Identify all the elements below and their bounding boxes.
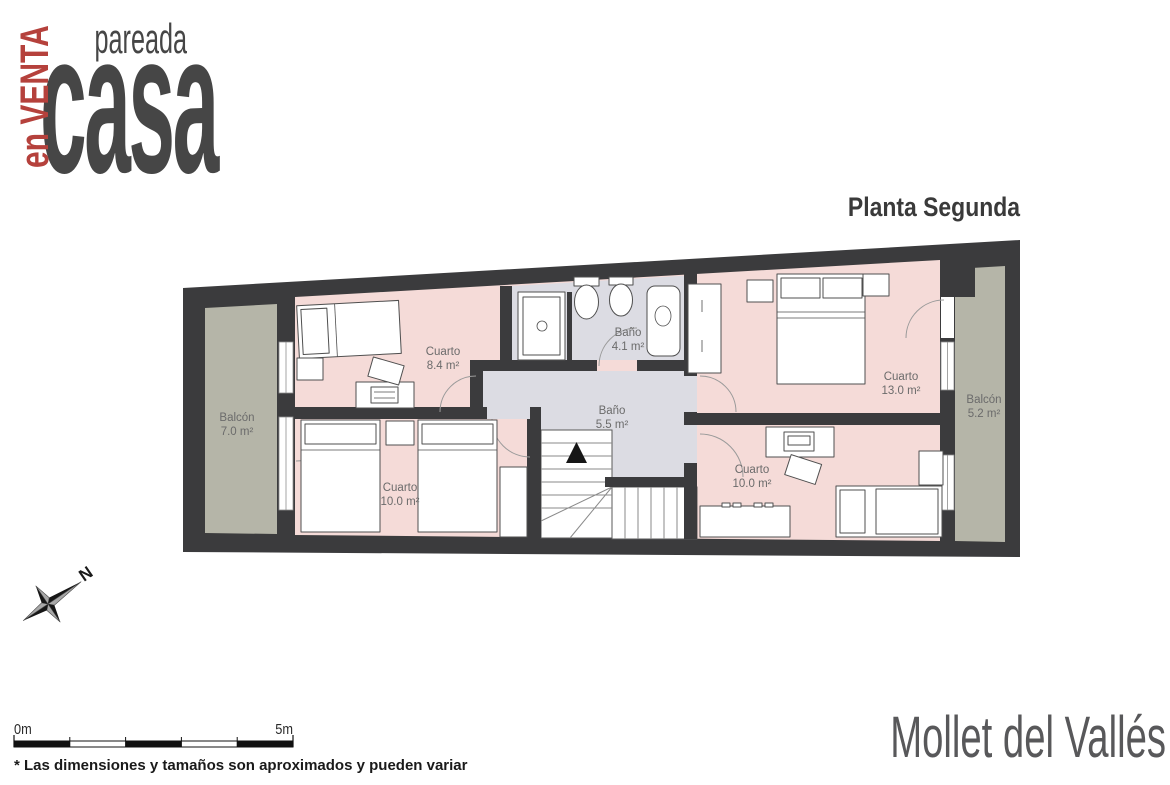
svg-text:10.0 m²: 10.0 m² — [381, 496, 420, 508]
svg-text:Cuarto: Cuarto — [735, 464, 770, 476]
scale-bar: 0m 5m — [14, 720, 293, 747]
door-opening — [941, 297, 954, 338]
svg-text:Balcón: Balcón — [219, 412, 254, 424]
scale-start-label: 0m — [14, 720, 32, 737]
furniture-cuarto-13 — [688, 274, 889, 384]
svg-text:5.5 m²: 5.5 m² — [596, 419, 629, 431]
compass-north-label: N — [75, 563, 96, 586]
svg-text:4.1 m²: 4.1 m² — [612, 341, 645, 353]
bed-icon — [297, 300, 402, 358]
floorplan: Cuarto 8.4 m² Baño 4.1 m² Baño 5.5 m² Cu… — [183, 240, 1020, 557]
wardrobe-icon — [688, 284, 721, 373]
disclaimer-note: * Las dimensiones y tamaños son aproxima… — [14, 757, 468, 774]
toilet-icon — [574, 277, 599, 319]
listing-flyer: pareada casa en VENTA Planta Segunda Mol… — [0, 0, 1170, 785]
svg-text:Baño: Baño — [615, 327, 642, 339]
monitor-icon — [784, 432, 814, 451]
logo-status-text: en VENTA — [13, 25, 57, 168]
svg-text:Baño: Baño — [599, 405, 626, 417]
single-bed-icon — [836, 486, 942, 537]
compass-icon: N — [23, 563, 96, 623]
nightstand-icon — [919, 451, 943, 485]
agency-logo: pareada casa en VENTA — [13, 0, 220, 215]
window-icon — [279, 342, 293, 393]
logo-brand-text: casa — [40, 0, 220, 215]
cabinet-icon — [500, 467, 527, 537]
window-icon — [941, 342, 954, 390]
svg-text:Cuarto: Cuarto — [884, 371, 919, 383]
nightstand-icon — [297, 358, 323, 380]
svg-text:8.4 m²: 8.4 m² — [427, 360, 460, 372]
sideboard-icon — [700, 503, 790, 537]
double-bed-icon — [777, 274, 865, 384]
shower-icon — [518, 292, 565, 360]
svg-text:7.0 m²: 7.0 m² — [221, 426, 254, 438]
sink-icon — [647, 286, 680, 356]
floorplan-canvas: pareada casa en VENTA Planta Segunda Mol… — [0, 0, 1170, 785]
svg-text:Cuarto: Cuarto — [383, 482, 418, 494]
single-bed-icon — [301, 420, 380, 532]
bidet-icon — [609, 277, 633, 316]
floor-title: Planta Segunda — [848, 192, 1021, 222]
svg-text:13.0 m²: 13.0 m² — [882, 385, 921, 397]
nightstand-icon — [863, 274, 889, 296]
svg-text:Cuarto: Cuarto — [426, 346, 461, 358]
scale-end-label: 5m — [275, 720, 293, 737]
window-icon — [279, 417, 293, 510]
nightstand-icon — [747, 280, 773, 302]
nightstand-icon — [386, 421, 414, 445]
svg-text:5.2 m²: 5.2 m² — [968, 408, 1001, 420]
location-title: Mollet del Vallés — [890, 706, 1166, 770]
printer-icon — [371, 387, 398, 403]
svg-text:10.0 m²: 10.0 m² — [733, 478, 772, 490]
single-bed-icon — [418, 420, 497, 532]
svg-text:Balcón: Balcón — [966, 394, 1001, 406]
